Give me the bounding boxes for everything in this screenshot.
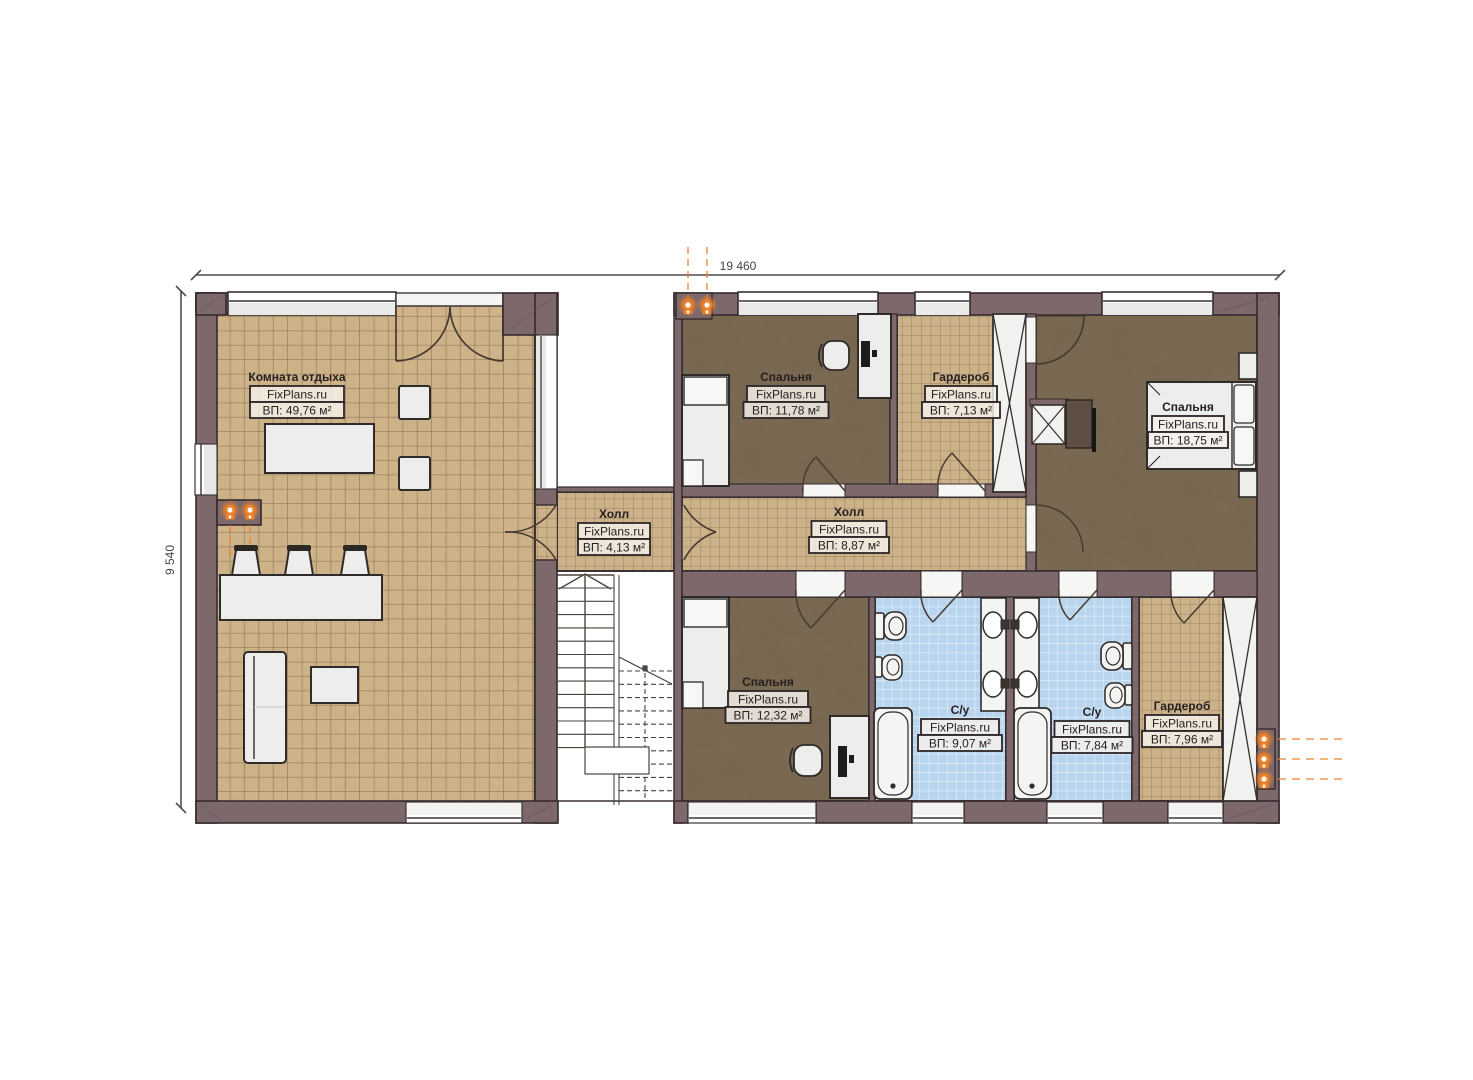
svg-text:ВП: 11,78 м²: ВП: 11,78 м² bbox=[752, 404, 820, 418]
svg-text:Гардероб: Гардероб bbox=[933, 370, 990, 384]
svg-text:ВП: 4,13 м²: ВП: 4,13 м² bbox=[583, 541, 645, 555]
svg-text:FixPlans.ru: FixPlans.ru bbox=[584, 525, 644, 539]
svg-text:FixPlans.ru: FixPlans.ru bbox=[1158, 418, 1218, 432]
svg-text:FixPlans.ru: FixPlans.ru bbox=[738, 693, 798, 707]
svg-text:FixPlans.ru: FixPlans.ru bbox=[931, 388, 991, 402]
svg-text:FixPlans.ru: FixPlans.ru bbox=[930, 721, 990, 735]
svg-text:ВП: 18,75 м²: ВП: 18,75 м² bbox=[1154, 434, 1223, 448]
svg-text:С/у: С/у bbox=[951, 703, 970, 717]
svg-text:Спальня: Спальня bbox=[1162, 400, 1214, 414]
svg-text:FixPlans.ru: FixPlans.ru bbox=[756, 388, 816, 402]
svg-text:FixPlans.ru: FixPlans.ru bbox=[819, 523, 879, 537]
svg-text:Комната отдыха: Комната отдыха bbox=[248, 370, 345, 384]
svg-text:Спальня: Спальня bbox=[742, 675, 794, 689]
svg-text:FixPlans.ru: FixPlans.ru bbox=[1152, 717, 1212, 731]
svg-text:ВП: 49,76 м²: ВП: 49,76 м² bbox=[263, 404, 332, 418]
svg-text:Спальня: Спальня bbox=[760, 370, 812, 384]
svg-text:ВП: 12,32 м²: ВП: 12,32 м² bbox=[734, 709, 803, 723]
svg-text:Холл: Холл bbox=[834, 505, 864, 519]
svg-text:С/у: С/у bbox=[1083, 705, 1102, 719]
svg-text:ВП: 7,84 м²: ВП: 7,84 м² bbox=[1061, 739, 1123, 753]
svg-text:ВП: 9,07 м²: ВП: 9,07 м² bbox=[929, 737, 991, 751]
svg-text:Гардероб: Гардероб bbox=[1154, 699, 1211, 713]
svg-text:Холл: Холл bbox=[599, 507, 629, 521]
svg-text:9 540: 9 540 bbox=[163, 545, 177, 575]
svg-text:ВП: 8,87 м²: ВП: 8,87 м² bbox=[818, 539, 880, 553]
svg-text:FixPlans.ru: FixPlans.ru bbox=[1062, 723, 1122, 737]
svg-text:ВП: 7,13 м²: ВП: 7,13 м² bbox=[930, 404, 992, 418]
svg-text:19 460: 19 460 bbox=[720, 259, 757, 273]
svg-text:FixPlans.ru: FixPlans.ru bbox=[267, 388, 327, 402]
svg-text:ВП: 7,96 м²: ВП: 7,96 м² bbox=[1151, 733, 1213, 747]
